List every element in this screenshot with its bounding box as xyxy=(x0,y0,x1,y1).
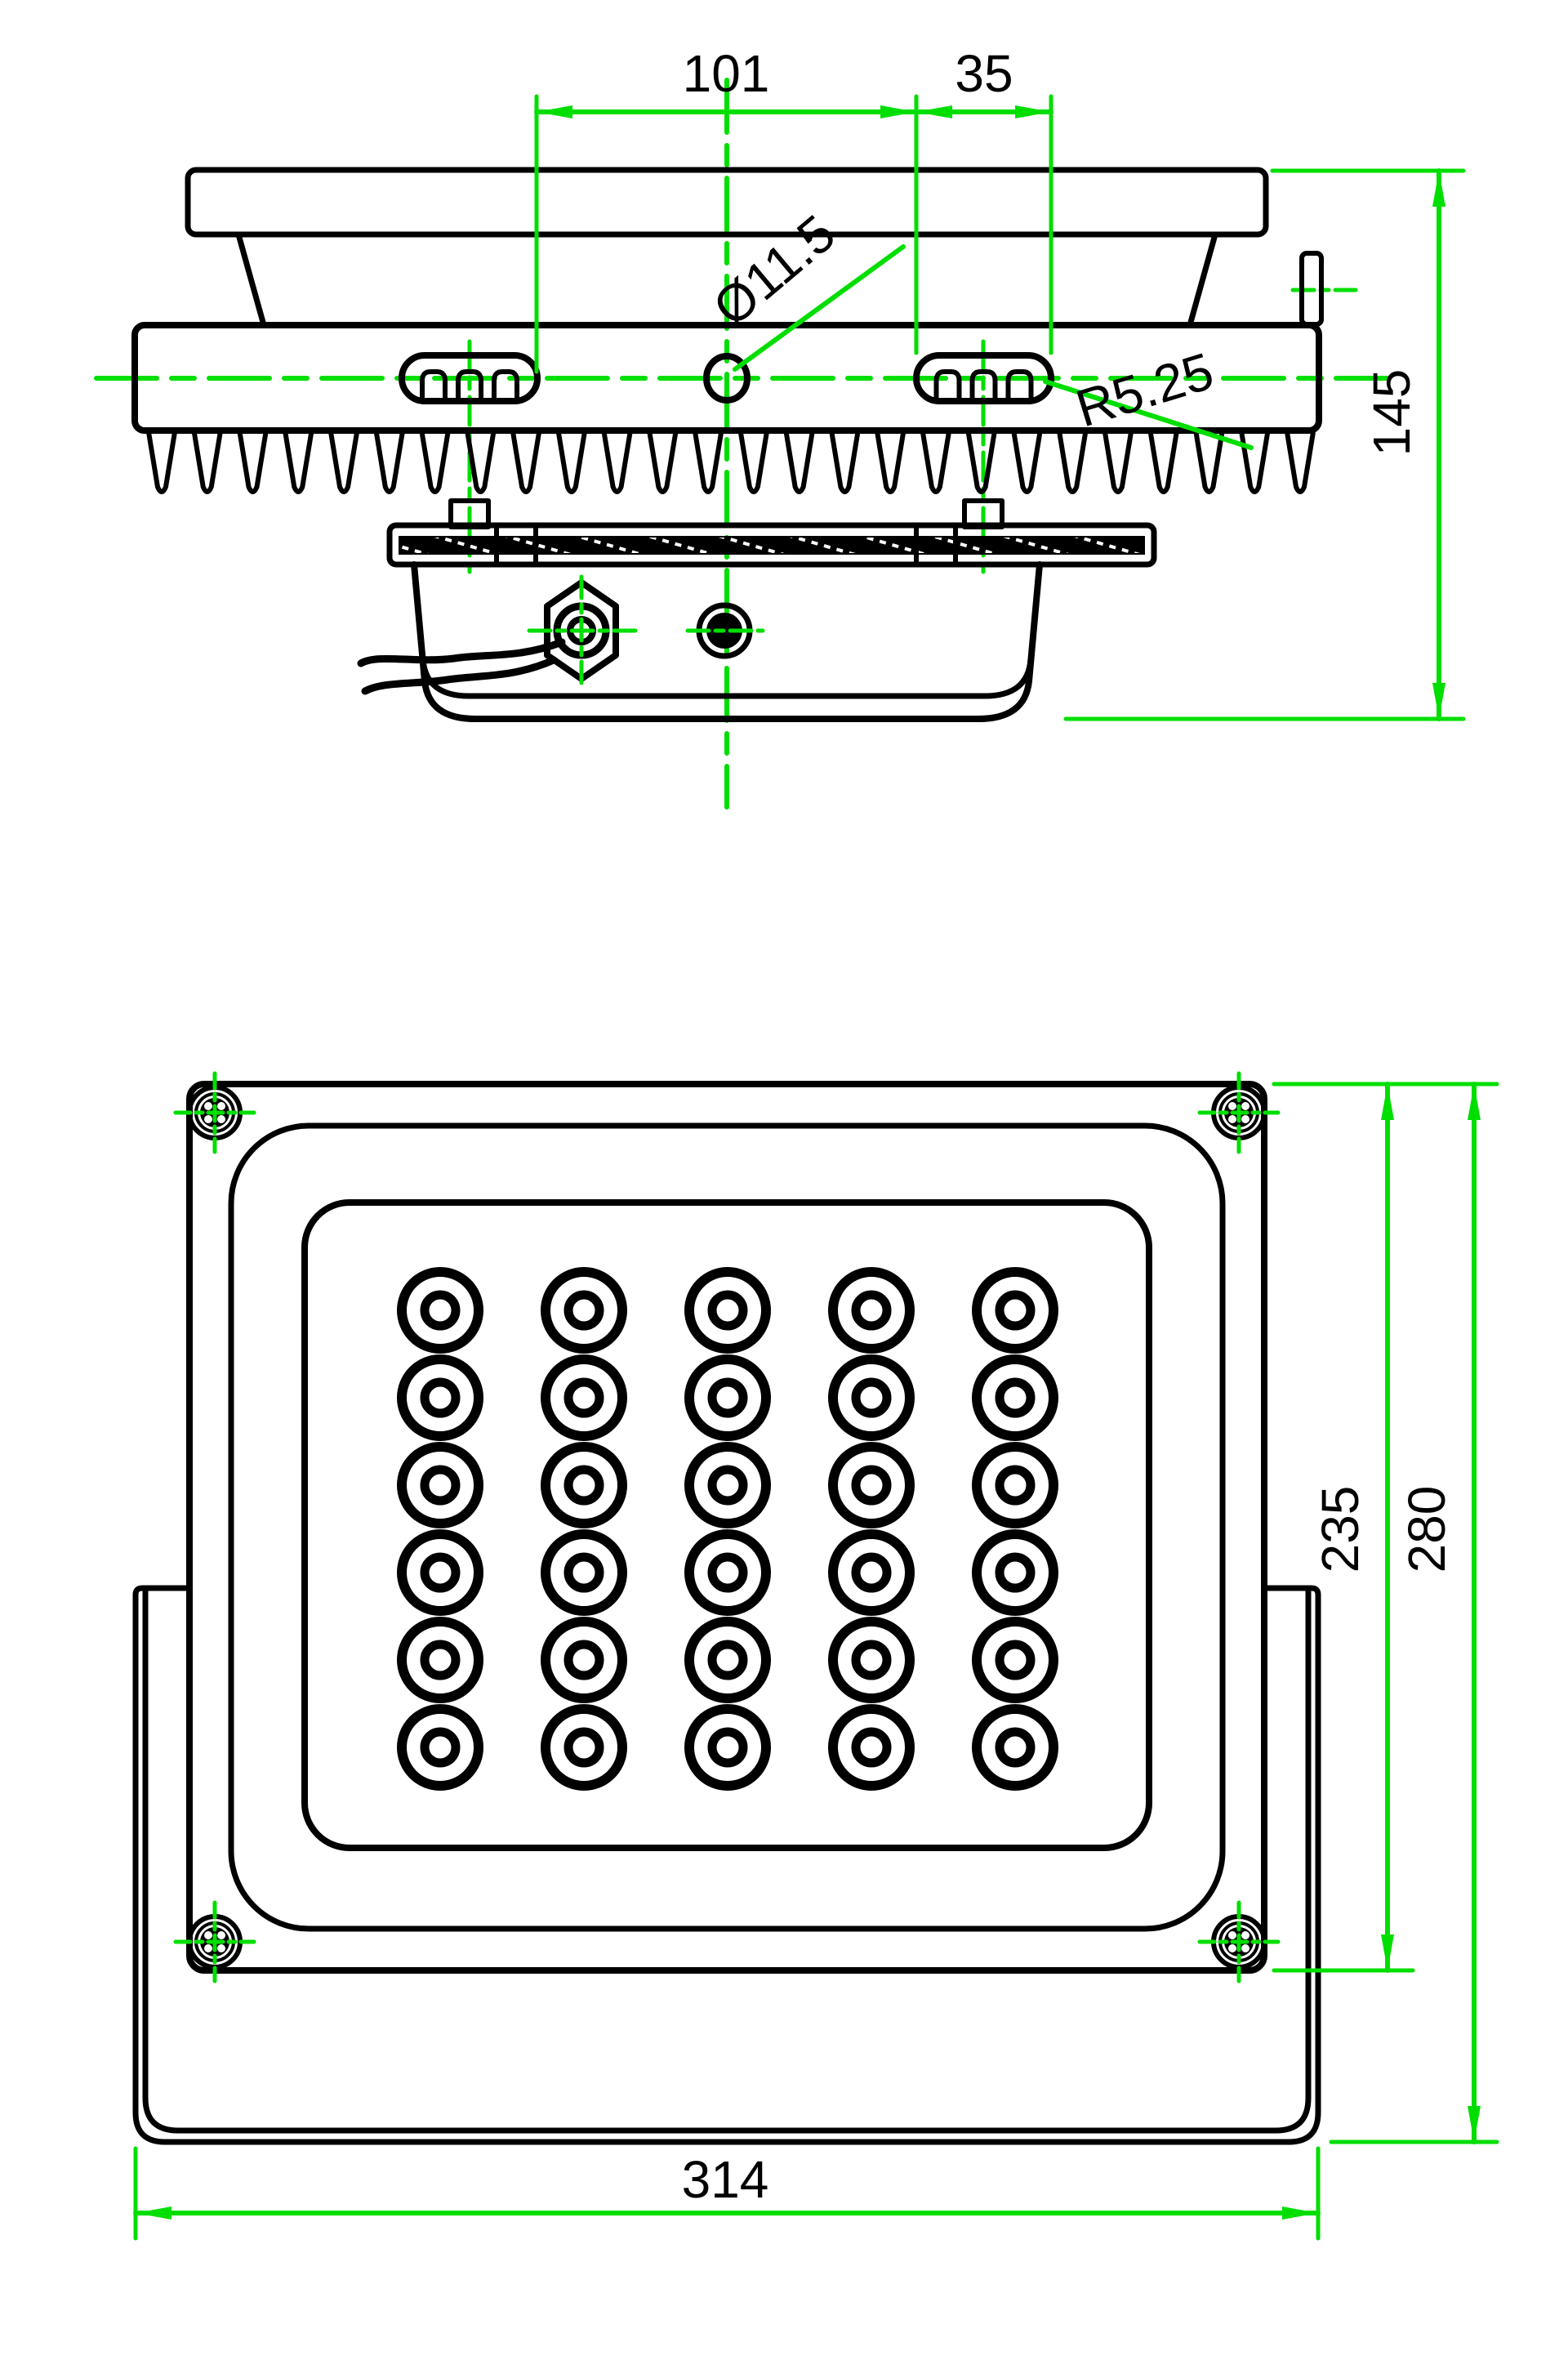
dim-label-radius: R5.25 xyxy=(1069,341,1219,439)
dim-314: 314 xyxy=(136,2149,1318,2238)
housing-taper-left xyxy=(238,234,264,325)
dim-hole-leader: Ø11.5 xyxy=(702,203,903,369)
dim-label-280: 280 xyxy=(1397,1486,1456,1573)
cad-drawing: 101 35 Ø11.5 R5.25 145 xyxy=(0,0,1568,2356)
dim-label-145: 145 xyxy=(1362,369,1421,457)
side-view: 101 35 Ø11.5 R5.25 145 xyxy=(96,44,1463,807)
dim-label-hole: Ø11.5 xyxy=(702,203,846,337)
drawing-sheet: 101 35 Ø11.5 R5.25 145 xyxy=(0,0,1568,2356)
heatsink-fins xyxy=(149,432,1313,492)
front-view: 235 280 314 xyxy=(136,1073,1497,2238)
cable-gland xyxy=(529,577,635,685)
dim-label-101: 101 xyxy=(683,44,770,103)
led-array xyxy=(402,1272,1053,1786)
power-cable xyxy=(365,660,554,691)
housing-taper-right xyxy=(1190,234,1215,325)
power-cable xyxy=(361,642,562,663)
dim-label-314: 314 xyxy=(682,2150,769,2209)
dim-label-235: 235 xyxy=(1311,1486,1370,1573)
yoke-inner xyxy=(145,1588,1308,2131)
drain-plug xyxy=(688,605,763,656)
dim-label-35: 35 xyxy=(955,44,1013,103)
gasket-band xyxy=(399,537,1144,554)
